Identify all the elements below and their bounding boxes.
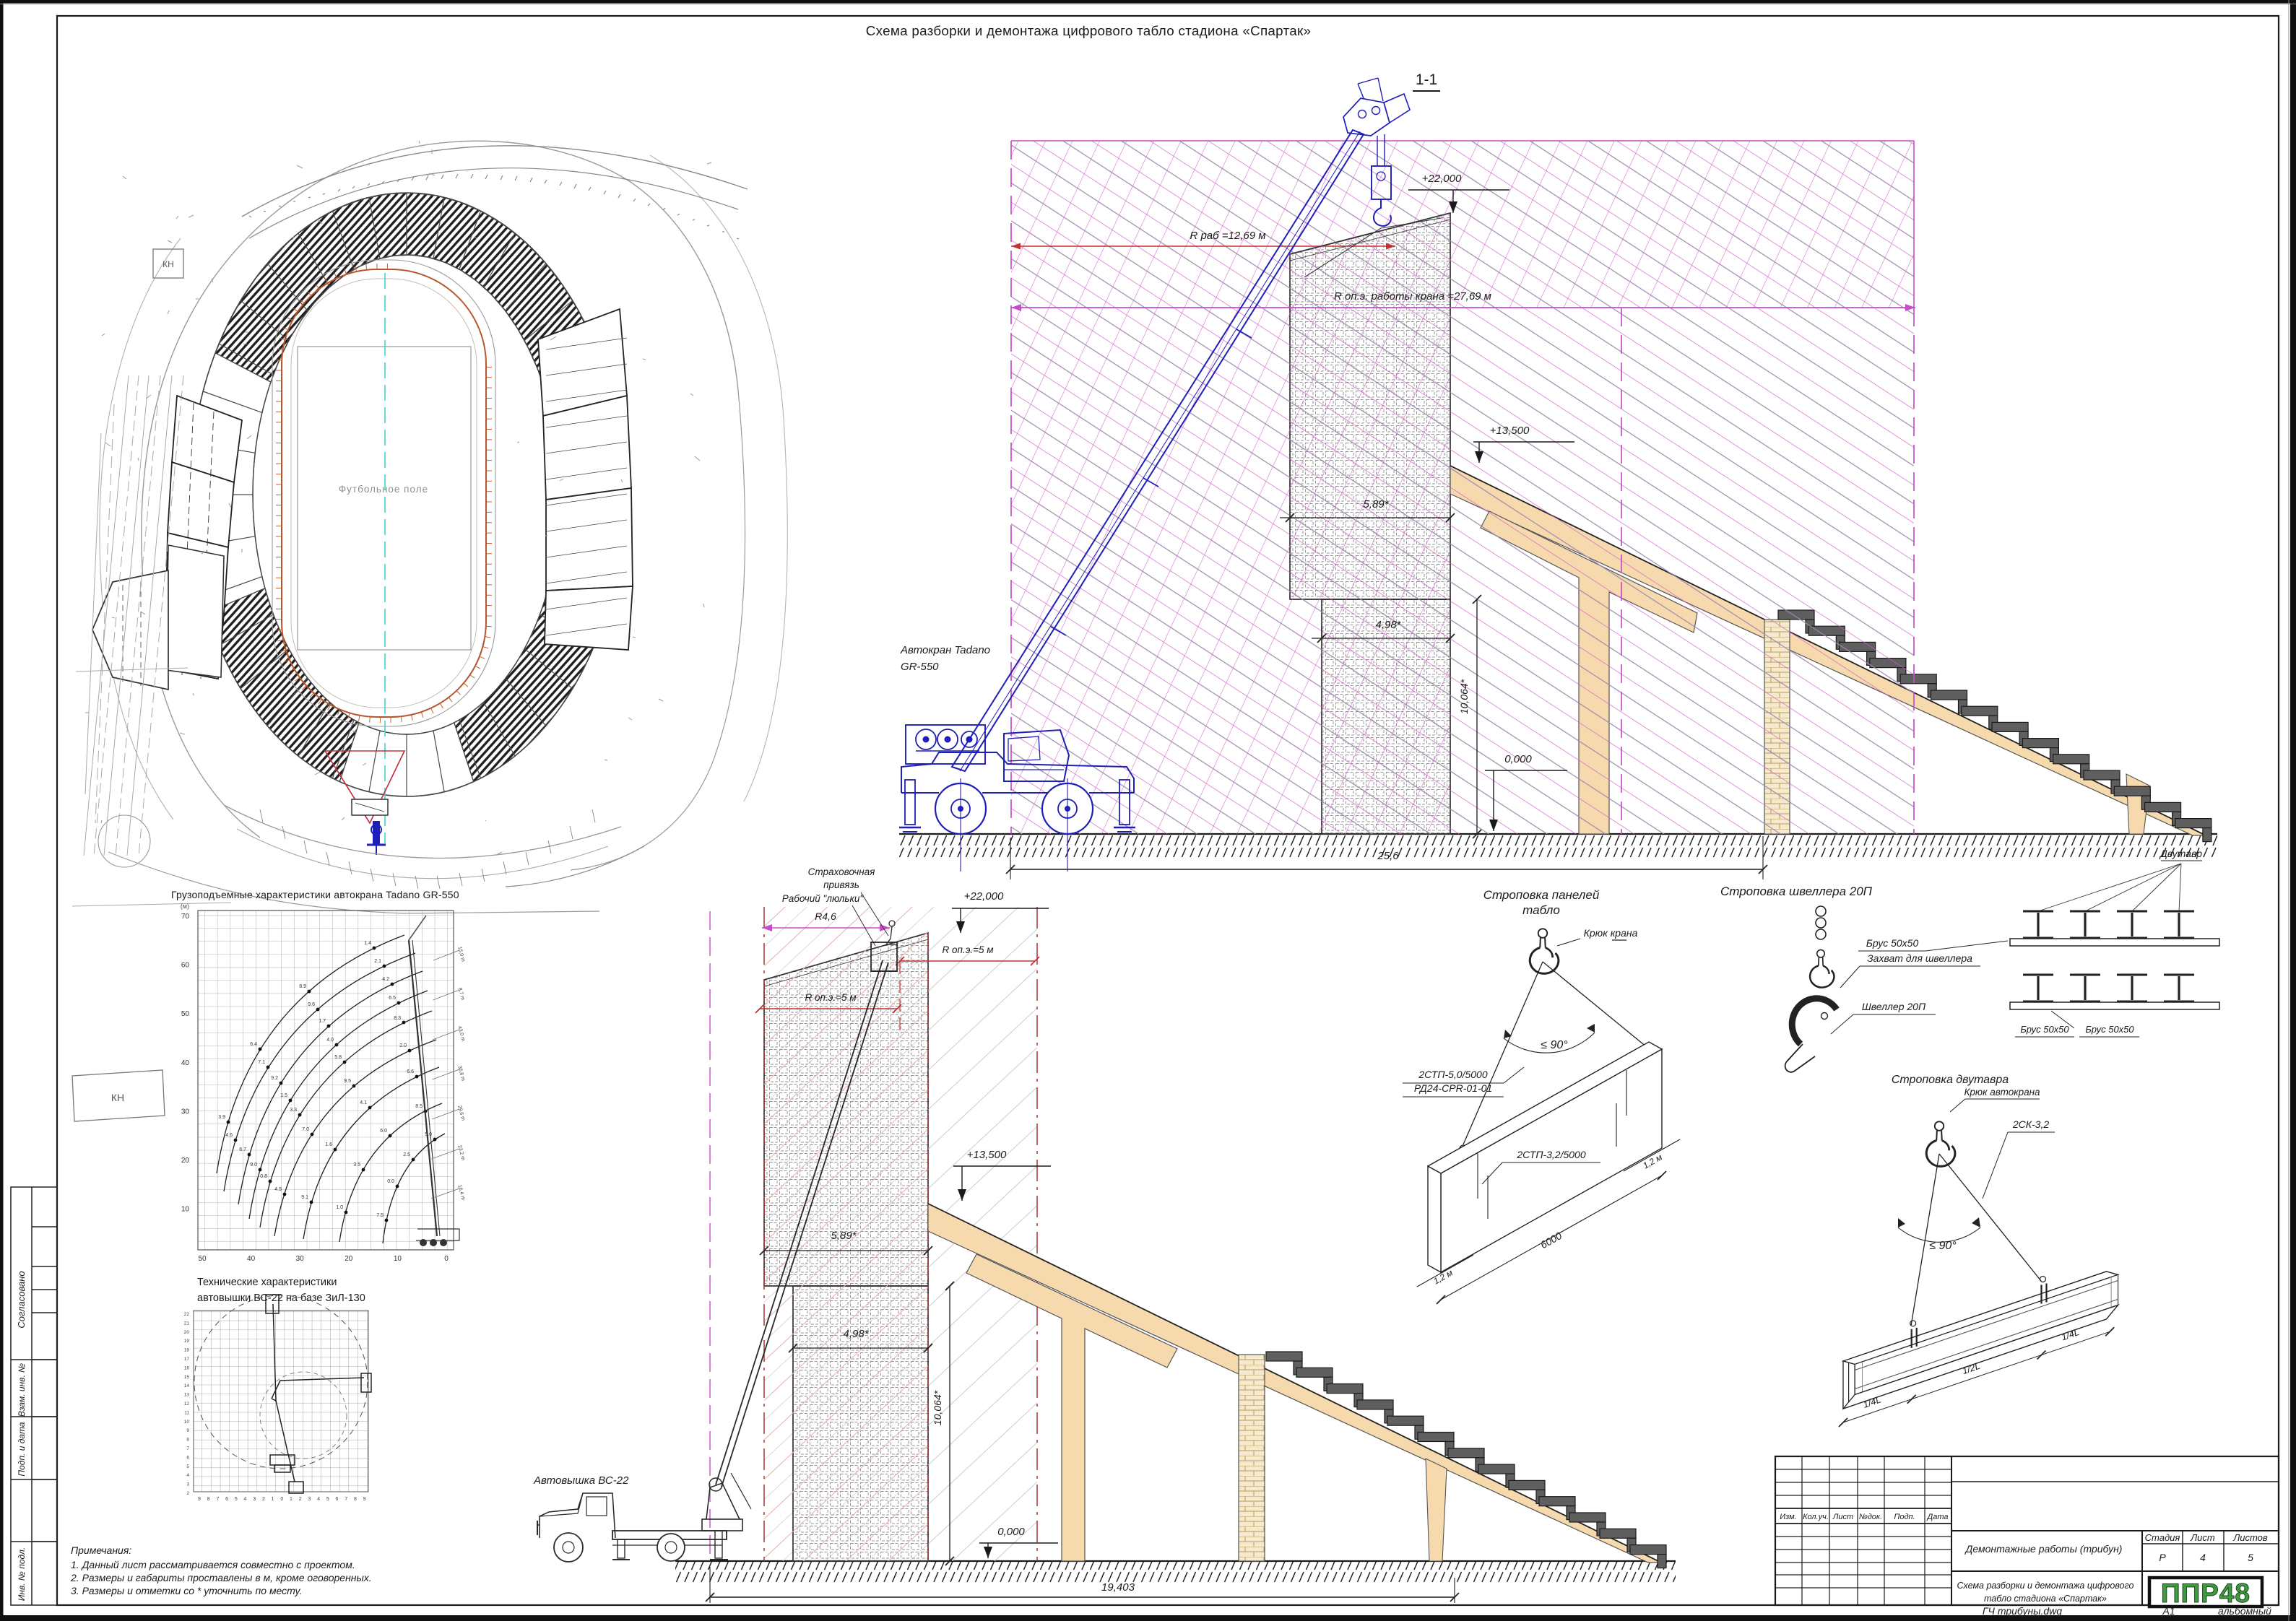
svg-text:GR-550: GR-550 [901, 661, 939, 673]
svg-text:0.0: 0.0 [387, 1179, 394, 1184]
svg-text:8: 8 [186, 1438, 189, 1443]
svg-text:11: 11 [184, 1410, 189, 1415]
svg-text:3.3: 3.3 [290, 1108, 297, 1113]
svg-text:3.5: 3.5 [353, 1162, 360, 1168]
svg-text:2: 2 [186, 1491, 189, 1496]
svg-text:+13,500: +13,500 [1490, 425, 1530, 437]
svg-text:0,000: 0,000 [997, 1526, 1025, 1538]
svg-text:10: 10 [394, 1255, 402, 1263]
svg-text:Автокран Tadano: Автокран Tadano [900, 644, 990, 656]
svg-text:Крюк автокрана: Крюк автокрана [1964, 1087, 2040, 1098]
svg-text:4.0: 4.0 [326, 1038, 334, 1043]
svg-text:3: 3 [308, 1497, 311, 1502]
svg-text:19,403: 19,403 [1101, 1581, 1135, 1594]
svg-text:Подп.: Подп. [1894, 1513, 1915, 1521]
svg-text:20: 20 [184, 1330, 190, 1335]
svg-text:7.5: 7.5 [376, 1213, 384, 1218]
svg-text:R оп.э. работы крана =27,69 м: R оп.э. работы крана =27,69 м [1334, 290, 1491, 303]
svg-text:6: 6 [186, 1455, 189, 1460]
svg-text:22: 22 [184, 1312, 190, 1317]
svg-text:20: 20 [345, 1255, 353, 1263]
svg-text:5: 5 [326, 1497, 329, 1502]
svg-text:30: 30 [296, 1255, 305, 1263]
svg-text:Брус 50x50: Брус 50x50 [2020, 1024, 2069, 1035]
svg-text:+22,000: +22,000 [1422, 173, 1462, 185]
svg-text:Грузоподъемные характеристики: Грузоподъемные характеристики автокрана … [171, 889, 459, 900]
svg-text:≤ 90°: ≤ 90° [1541, 1039, 1568, 1051]
svg-text:7.1: 7.1 [258, 1060, 265, 1065]
svg-text:1.6: 1.6 [325, 1142, 332, 1147]
svg-text:Стадия: Стадия [2145, 1532, 2180, 1543]
svg-text:7.0: 7.0 [302, 1127, 309, 1132]
svg-text:4: 4 [2200, 1552, 2206, 1563]
svg-text:2.1: 2.1 [374, 959, 381, 964]
svg-text:5: 5 [186, 1464, 189, 1469]
svg-text:1.7: 1.7 [319, 1019, 326, 1024]
svg-text:4.6: 4.6 [225, 1133, 233, 1138]
svg-text:9: 9 [363, 1497, 366, 1502]
svg-text:3: 3 [186, 1482, 189, 1487]
svg-text:Лист: Лист [2190, 1532, 2215, 1543]
svg-text:18: 18 [184, 1348, 190, 1353]
svg-text:10,064*: 10,064* [1458, 679, 1470, 714]
svg-text:Захват для швеллера: Захват для швеллера [1867, 952, 1972, 964]
svg-text:Брус 50x50: Брус 50x50 [2085, 1024, 2134, 1035]
svg-text:8: 8 [354, 1497, 357, 1502]
svg-text:7: 7 [186, 1446, 189, 1451]
svg-text:Технические характеристики: Технические характеристики [197, 1277, 337, 1288]
svg-text:4.5: 4.5 [274, 1187, 282, 1192]
svg-text:1.5: 1.5 [280, 1093, 287, 1098]
svg-text:Брус 50x50: Брус 50x50 [1866, 937, 1919, 949]
svg-text:6: 6 [336, 1497, 339, 1502]
svg-text:9.2: 9.2 [271, 1076, 278, 1081]
svg-text:9: 9 [186, 1428, 189, 1433]
svg-text:4: 4 [244, 1497, 247, 1502]
svg-text:6.4: 6.4 [250, 1042, 257, 1047]
svg-text:R оп.э.=5 м: R оп.э.=5 м [943, 944, 994, 955]
svg-text:2СТП-3,2/5000: 2СТП-3,2/5000 [1516, 1149, 1586, 1160]
svg-text:0,000: 0,000 [1504, 753, 1532, 765]
svg-text:Строповка швеллера 20П: Строповка швеллера 20П [1720, 885, 1873, 898]
svg-text:Инв. № подл.: Инв. № подл. [17, 1547, 27, 1601]
svg-text:Рабочий "люльки": Рабочий "люльки" [782, 893, 865, 904]
svg-text:№док.: №док. [1859, 1513, 1882, 1521]
svg-text:2СТП-5,0/5000: 2СТП-5,0/5000 [1418, 1069, 1488, 1080]
svg-text:9.1: 9.1 [301, 1195, 308, 1200]
svg-text:10: 10 [181, 1206, 190, 1214]
svg-text:R4,6: R4,6 [815, 911, 836, 922]
svg-text:табло стадиона «Спартак»: табло стадиона «Спартак» [1984, 1594, 2107, 1604]
svg-text:0: 0 [444, 1255, 449, 1263]
svg-text:8.3: 8.3 [394, 1016, 401, 1021]
svg-text:0.8: 0.8 [260, 1174, 267, 1179]
svg-text:3: 3 [253, 1497, 256, 1502]
svg-text:9: 9 [198, 1497, 201, 1502]
svg-text:+13,500: +13,500 [967, 1149, 1007, 1161]
svg-text:Футбольное поле: Футбольное поле [339, 484, 428, 495]
svg-text:2.5: 2.5 [403, 1152, 410, 1157]
svg-text:Демонтажные работы (трибун): Демонтажные работы (трибун) [1964, 1543, 2123, 1555]
svg-text:табло: табло [1522, 903, 1560, 917]
svg-text:4.2: 4.2 [382, 977, 389, 982]
svg-text:4: 4 [317, 1497, 320, 1502]
svg-text:Швеллер 20П: Швеллер 20П [1862, 1001, 1926, 1012]
svg-text:2. Размеры и габариты проставл: 2. Размеры и габариты проставлены в м, к… [70, 1572, 372, 1583]
svg-text:20: 20 [181, 1157, 190, 1165]
svg-text:25,6: 25,6 [1377, 850, 1399, 862]
svg-text:6.0: 6.0 [380, 1129, 387, 1134]
svg-text:4,98*: 4,98* [843, 1328, 869, 1340]
svg-text:КН: КН [163, 259, 174, 269]
svg-text:R оп.э.=5 м: R оп.э.=5 м [805, 992, 857, 1003]
svg-text:9.6: 9.6 [308, 1002, 315, 1007]
svg-text:40: 40 [181, 1059, 190, 1067]
svg-text:+22,000: +22,000 [964, 890, 1004, 903]
svg-text:2: 2 [262, 1497, 265, 1502]
svg-text:9.0: 9.0 [250, 1162, 257, 1168]
svg-text:10,064*: 10,064* [932, 1390, 943, 1425]
svg-text:17: 17 [184, 1357, 190, 1362]
svg-text:Схема разборки и демонтажа циф: Схема разборки и демонтажа цифрового таб… [866, 23, 1311, 38]
svg-text:Согласовано: Согласовано [16, 1271, 27, 1328]
svg-text:Автовышка ВС-22: Автовышка ВС-22 [533, 1474, 629, 1487]
svg-text:Р: Р [2159, 1552, 2166, 1563]
svg-text:Страховочная: Страховочная [808, 866, 875, 877]
svg-text:5: 5 [235, 1497, 238, 1502]
svg-text:3.9: 3.9 [218, 1115, 225, 1120]
svg-text:Лист: Лист [1832, 1513, 1853, 1521]
svg-text:5.8: 5.8 [334, 1055, 342, 1060]
svg-text:1-1: 1-1 [1416, 71, 1437, 88]
svg-text:ГЧ трибуны.dwg: ГЧ трибуны.dwg [1983, 1605, 2062, 1617]
svg-text:Строповка панелей: Строповка панелей [1483, 888, 1600, 902]
svg-text:2.0: 2.0 [399, 1043, 407, 1048]
svg-text:Крюк крана: Крюк крана [1584, 927, 1638, 939]
svg-text:50: 50 [181, 1010, 190, 1018]
svg-text:1.4: 1.4 [364, 941, 371, 946]
svg-text:8.9: 8.9 [299, 984, 306, 989]
svg-text:РД24-CPR-01-01: РД24-CPR-01-01 [1414, 1082, 1492, 1094]
svg-text:12: 12 [184, 1401, 190, 1407]
svg-text:70: 70 [181, 913, 190, 921]
svg-text:13: 13 [184, 1393, 190, 1398]
svg-text:R раб =12,69 м: R раб =12,69 м [1190, 230, 1265, 242]
svg-text:5: 5 [2248, 1552, 2253, 1563]
svg-text:автовышки ВС-22 на базе ЗиЛ-13: автовышки ВС-22 на базе ЗиЛ-130 [197, 1292, 365, 1304]
svg-text:6.6: 6.6 [407, 1069, 414, 1074]
svg-text:Листов: Листов [2232, 1532, 2268, 1543]
svg-text:привязь: привязь [823, 879, 859, 890]
svg-text:2СК-3,2: 2СК-3,2 [2012, 1118, 2049, 1130]
svg-text:1. Данный лист рассматривается: 1. Данный лист рассматривается совместно… [71, 1559, 355, 1570]
svg-text:2: 2 [299, 1497, 302, 1502]
svg-text:6.7: 6.7 [239, 1147, 246, 1152]
svg-text:Кол.уч.: Кол.уч. [1803, 1513, 1829, 1521]
svg-text:5,89*: 5,89* [831, 1230, 857, 1242]
svg-text:4.1: 4.1 [360, 1100, 367, 1105]
svg-text:КН: КН [111, 1092, 124, 1103]
svg-text:1.0: 1.0 [336, 1205, 343, 1210]
svg-text:Примечания:: Примечания: [71, 1544, 131, 1556]
svg-text:7: 7 [345, 1497, 347, 1502]
svg-text:60: 60 [181, 962, 190, 970]
svg-text:А1: А1 [2162, 1605, 2175, 1617]
svg-text:10: 10 [184, 1420, 190, 1425]
svg-text:1: 1 [272, 1497, 274, 1502]
svg-text:5,89*: 5,89* [1363, 498, 1389, 510]
svg-text:Двутавр: Двутавр [2159, 848, 2202, 859]
svg-text:40: 40 [247, 1255, 256, 1263]
svg-text:15: 15 [184, 1375, 190, 1380]
svg-text:30: 30 [181, 1108, 190, 1116]
svg-text:3. Размеры и отметки со * уточ: 3. Размеры и отметки со * уточнить по ме… [71, 1585, 302, 1596]
svg-text:6: 6 [225, 1497, 228, 1502]
svg-text:альбомный: альбомный [2218, 1605, 2271, 1617]
svg-text:4: 4 [186, 1473, 189, 1478]
svg-text:Дата: Дата [1925, 1513, 1948, 1521]
svg-text:50: 50 [198, 1255, 207, 1263]
svg-text:9.5: 9.5 [344, 1079, 351, 1084]
svg-text:4,98*: 4,98* [1375, 619, 1401, 631]
svg-text:8: 8 [207, 1497, 210, 1502]
svg-text:7: 7 [216, 1497, 219, 1502]
svg-text:≤ 90°: ≤ 90° [1929, 1240, 1957, 1252]
svg-text:Подп. и дата: Подп. и дата [17, 1422, 27, 1476]
svg-text:(м): (м) [181, 903, 189, 910]
svg-text:Строповка двутавра: Строповка двутавра [1892, 1074, 2009, 1086]
svg-text:1: 1 [290, 1497, 293, 1502]
svg-text:21: 21 [184, 1321, 190, 1326]
svg-text:14: 14 [184, 1383, 190, 1389]
svg-text:Изм.: Изм. [1780, 1513, 1796, 1521]
svg-text:16: 16 [184, 1365, 190, 1370]
svg-text:19: 19 [184, 1339, 190, 1344]
svg-text:ППР48: ППР48 [2161, 1578, 2250, 1608]
svg-text:Схема разборки и демонтажа циф: Схема разборки и демонтажа цифрового [1957, 1581, 2134, 1591]
svg-text:0: 0 [280, 1497, 283, 1502]
svg-text:6.5: 6.5 [389, 996, 396, 1001]
svg-text:Взам. инв. №: Взам. инв. № [17, 1363, 27, 1417]
svg-text:8.5: 8.5 [415, 1104, 423, 1109]
